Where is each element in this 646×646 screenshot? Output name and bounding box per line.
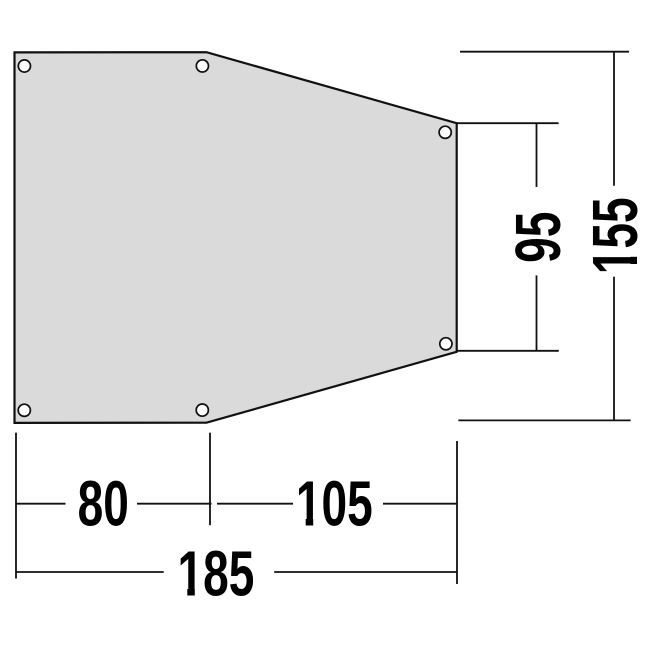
svg-text:95: 95: [502, 212, 573, 263]
svg-text:185: 185: [177, 538, 254, 609]
svg-text:155: 155: [580, 197, 646, 274]
svg-text:80: 80: [78, 468, 129, 539]
svg-text:105: 105: [296, 468, 373, 539]
